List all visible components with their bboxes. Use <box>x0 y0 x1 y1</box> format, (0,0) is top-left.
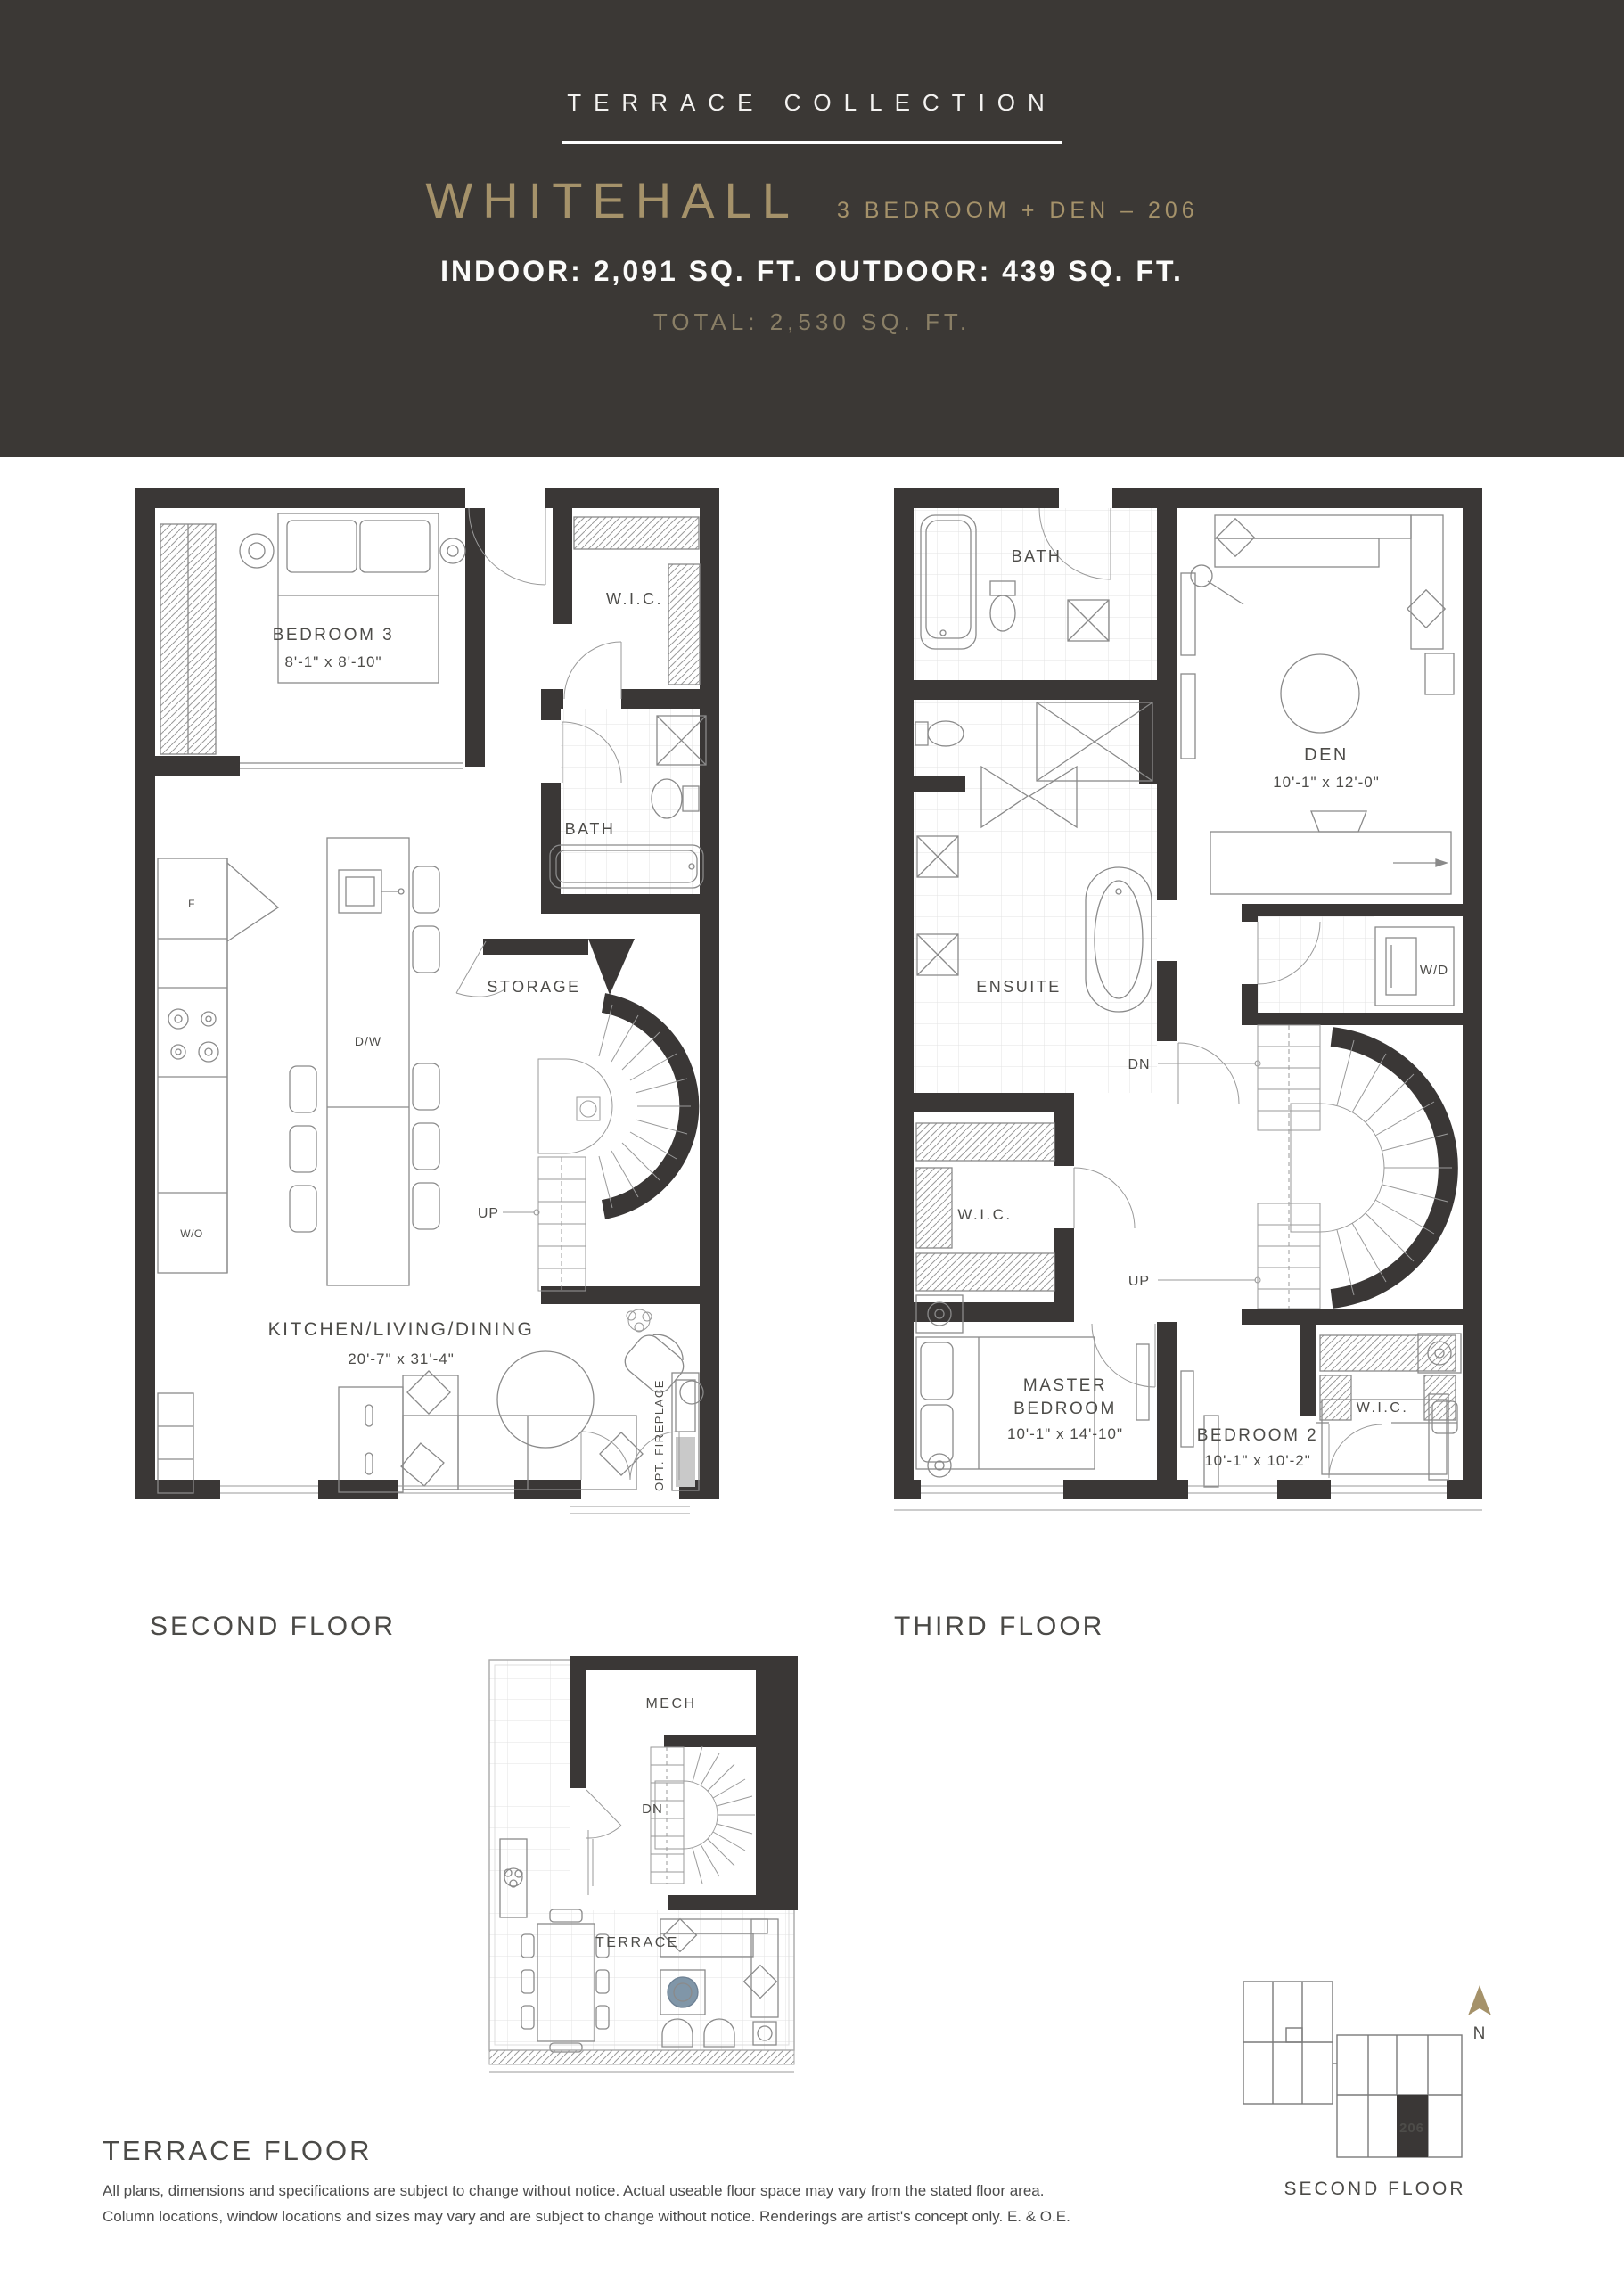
kld-label: KITCHEN/LIVING/DINING <box>268 1319 535 1340</box>
second-floor-caption: SECOND FLOOR <box>150 1612 396 1642</box>
disclaimer-line-2: Column locations, window locations and s… <box>103 2204 1070 2229</box>
collection-title: TERRACE COLLECTION <box>0 89 1624 117</box>
bedroom3-label: BEDROOM 3 <box>273 626 395 644</box>
mech-label: MECH <box>645 1696 696 1711</box>
keyplan-unit-label: 206 <box>1399 2121 1424 2136</box>
terrace-floor-plan: MECH DN TERRACE <box>486 1656 798 2081</box>
ensuite-door <box>1178 1043 1239 1104</box>
wall-oven-label: W/O <box>180 1227 203 1240</box>
opt-fireplace-label: OPT. FIREPLACE <box>652 1379 666 1491</box>
bath-tile-floor <box>561 709 700 894</box>
master-dims: 10'-1" x 14'-10" <box>1007 1425 1123 1442</box>
bath-label: BATH <box>565 820 616 838</box>
wic-door <box>564 642 621 699</box>
bedroom3-dims: 8'-1" x 8'-10" <box>284 653 381 670</box>
den-dims: 10'-1" x 12'-0" <box>1273 774 1380 791</box>
keyplan: 206 N <box>1208 1974 1591 2171</box>
bedroom2-dims: 10'-1" x 10'-2" <box>1204 1452 1311 1469</box>
wd-label: W/D <box>1420 963 1448 978</box>
area-line: INDOOR: 2,091 SQ. FT. OUTDOOR: 439 SQ. F… <box>0 255 1624 288</box>
dishwasher-label: D/W <box>355 1034 381 1048</box>
wic-label: W.I.C. <box>606 590 663 608</box>
storage-label: STORAGE <box>487 978 580 996</box>
bath3-tile <box>914 508 1157 680</box>
north-arrow-icon <box>1468 1985 1491 2015</box>
total-line: TOTAL: 2,530 SQ. FT. <box>0 308 1624 336</box>
dn-pointer <box>1158 1061 1260 1066</box>
den-label: DEN <box>1304 745 1349 765</box>
den-furniture <box>1181 515 1454 894</box>
plan-title-row: WHITEHALL 3 BEDROOM + DEN – 206 <box>0 171 1624 229</box>
disclaimer-line-1: All plans, dimensions and specifications… <box>103 2178 1070 2204</box>
up-pointer <box>1158 1277 1260 1283</box>
terrace-label: TERRACE <box>595 1935 679 1950</box>
header-band: TERRACE COLLECTION WHITEHALL 3 BEDROOM +… <box>0 0 1624 457</box>
fridge-label: F <box>188 898 195 910</box>
terrace-floor-caption: TERRACE FLOOR <box>103 2135 373 2167</box>
window-wall <box>220 1486 690 1514</box>
north-label: N <box>1473 2024 1487 2043</box>
header-divider <box>562 141 1062 144</box>
wic-right-label: W.I.C. <box>1357 1400 1409 1416</box>
dn-label: DN <box>1128 1057 1150 1072</box>
up-label: UP <box>478 1206 499 1221</box>
master-label-2: BEDROOM <box>1013 1400 1117 1418</box>
master-label-1: MASTER <box>1023 1376 1107 1395</box>
third-floor-plan: BATH DEN 10'-1" x 12'-0" ENSUITE W/D W.I… <box>894 488 1482 1523</box>
keyplan-caption: SECOND FLOOR <box>1266 2179 1484 2200</box>
ensuite-label: ENSUITE <box>976 978 1062 996</box>
kitchen-counter <box>158 858 278 1273</box>
bedroom2-door <box>1329 1424 1382 1478</box>
plant <box>627 1309 652 1332</box>
spiral-stair-3 <box>1258 1025 1452 1309</box>
terrace-dn-label: DN <box>642 1802 663 1817</box>
second-floor-plan: BEDROOM 3 8'-1" x 8'-10" W.I.C. BATH STO… <box>135 488 719 1523</box>
second-floor-walls <box>135 488 719 1499</box>
disclaimer: All plans, dimensions and specifications… <box>103 2178 1070 2229</box>
up-arrow-label <box>503 1210 539 1215</box>
keyplan-building-outline <box>1243 1982 1462 2157</box>
third-floor-caption: THIRD FLOOR <box>894 1612 1104 1642</box>
wic-left-door <box>1074 1168 1135 1228</box>
wic-left-label: W.I.C. <box>957 1206 1012 1223</box>
living-furniture <box>158 1324 703 1493</box>
floorplan-brochure-page: TERRACE COLLECTION WHITEHALL 3 BEDROOM +… <box>0 0 1624 2282</box>
wd-tile <box>1258 916 1374 1013</box>
bath3-label: BATH <box>1012 547 1062 565</box>
bedroom2-label: BEDROOM 2 <box>1197 1426 1319 1445</box>
kld-dims: 20'-7" x 31'-4" <box>348 1350 455 1367</box>
page-title: WHITEHALL <box>425 171 800 229</box>
plan-subtitle: 3 BEDROOM + DEN – 206 <box>837 198 1199 224</box>
up-label-3: UP <box>1128 1274 1150 1289</box>
kitchen-island-dining <box>290 838 439 1285</box>
terrace-parapet <box>489 2050 794 2072</box>
